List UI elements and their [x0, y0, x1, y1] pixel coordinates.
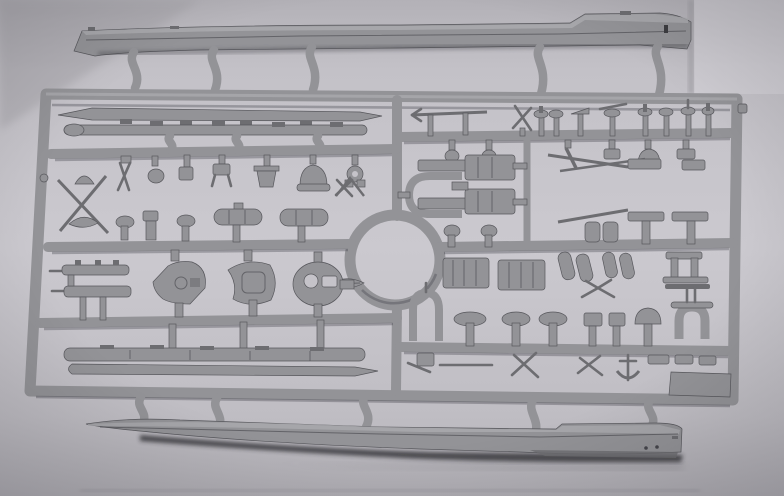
vignette-overlay [0, 0, 784, 496]
model-sprue-photo [0, 0, 784, 496]
photo-canvas [0, 0, 784, 496]
